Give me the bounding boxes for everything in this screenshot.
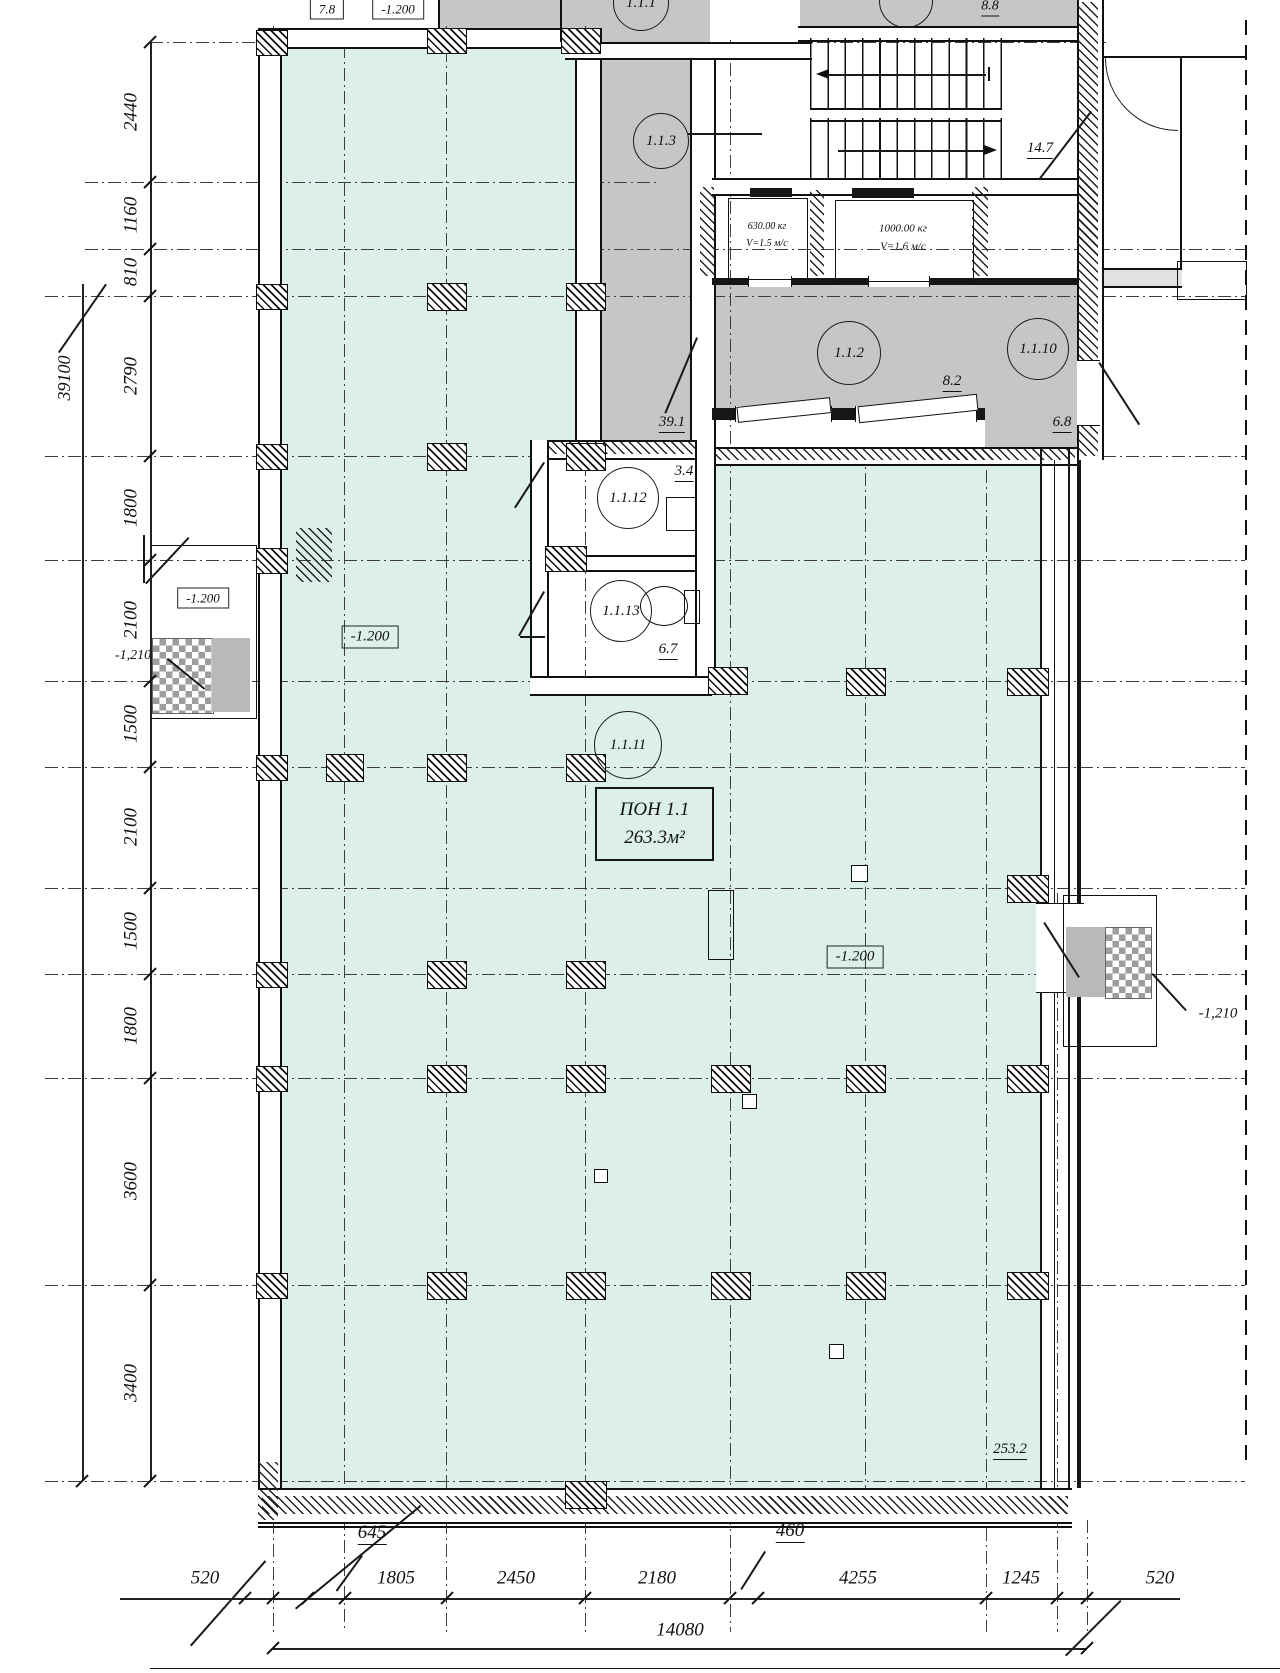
fill-region: [598, 56, 690, 456]
plan-label-19: 39100: [55, 356, 73, 401]
fill-region: [278, 45, 580, 456]
geom-hthin: [1102, 286, 1182, 288]
plan-label-8: 8.2: [943, 374, 962, 392]
geom-dk: [988, 67, 990, 81]
plan-label-0: 7.8: [310, 0, 344, 20]
column-symbol: [566, 1272, 606, 1300]
geom-hx: [714, 449, 1075, 460]
diagonal-line: [520, 636, 545, 638]
column-symbol: [256, 1273, 288, 1299]
dim-left-8: 1500: [122, 912, 141, 950]
plan-label-7: V=1.6 м/с: [880, 242, 926, 253]
column-symbol: [256, 755, 288, 781]
geom-hx: [810, 190, 824, 276]
plan-label-13: 253.2: [993, 1442, 1027, 1460]
geom-wb: [565, 42, 812, 60]
room-tag-1.1.10: 1.1.10: [1007, 318, 1069, 380]
small-column-symbol: [829, 1344, 844, 1359]
geom-ramp: [212, 638, 250, 712]
column-symbol: [545, 546, 587, 572]
column-symbol: [256, 444, 288, 470]
column-symbol: [846, 668, 886, 696]
diagonal-line: [143, 535, 145, 583]
grid-line-v: [865, 450, 866, 1525]
geom-vthin: [438, 0, 440, 28]
plan-label-5: V=1.5 м/с: [746, 239, 787, 249]
stair-direction-arrowhead: [984, 145, 997, 155]
plan-label-16: -1.200: [177, 588, 229, 609]
room-tag-1.1.12: 1.1.12: [597, 467, 659, 529]
dim-bottom-5: 460: [776, 1521, 805, 1543]
column-symbol: [1007, 668, 1049, 696]
dim-left-10: 3600: [122, 1162, 141, 1200]
dim-left-0: 2440: [122, 93, 141, 131]
column-symbol: [711, 1272, 751, 1300]
column-symbol: [427, 28, 467, 54]
column-symbol: [256, 548, 288, 574]
diagonal-line: [1152, 973, 1187, 1011]
column-symbol: [1007, 875, 1049, 903]
plan-label-18: -1,210: [1199, 1007, 1238, 1022]
grid-line-v: [1087, 1520, 1088, 1632]
geom-wbv: [575, 28, 602, 458]
geom-hx: [972, 187, 988, 276]
diagonal-line: [838, 150, 984, 152]
geom-hx: [532, 442, 710, 454]
zone-name: ПОН 1.1: [620, 799, 690, 821]
geom-vthin: [1180, 56, 1182, 268]
dim-bottom-6: 4255: [839, 1569, 877, 1588]
plan-label-10: 39.1: [659, 415, 685, 433]
plan-label-1: -1.200: [372, 0, 424, 20]
geom-hthin: [1102, 268, 1182, 270]
small-column-symbol: [594, 1169, 608, 1183]
plan-label-4: 630.00 кг: [748, 222, 787, 232]
plan-label-17: -1,210: [115, 649, 151, 663]
geom-hx: [296, 528, 332, 582]
column-symbol: [846, 1065, 886, 1093]
diagonal-line: [1099, 362, 1140, 425]
zone-area: 263.3м²: [624, 827, 685, 849]
door-swing-arc: [1105, 58, 1178, 131]
dim-total: 14080: [656, 1621, 704, 1640]
plan-label-11: 3.4: [675, 464, 694, 482]
geom-dk: [852, 188, 914, 198]
column-symbol: [566, 283, 606, 311]
grid-line-h: [45, 888, 1245, 889]
geom-gapv: [1077, 360, 1100, 426]
boundary-dashed-line: [1245, 20, 1247, 1470]
dim-bottom-0: 520: [191, 1569, 220, 1588]
column-symbol: [1007, 1272, 1049, 1300]
column-symbol: [256, 30, 288, 56]
plan-label-2: 8.8: [981, 0, 999, 17]
column-symbol: [561, 28, 601, 54]
diagonal-line: [688, 133, 762, 135]
dim-left-4: 1800: [122, 489, 141, 527]
grid-line-v: [446, 26, 447, 1632]
grid-line-h: [45, 1481, 1245, 1482]
column-symbol: [256, 1066, 288, 1092]
dim-left-11: 3400: [122, 1364, 141, 1402]
diagonal-line: [828, 74, 986, 76]
geom-mat: [1105, 927, 1152, 999]
plan-label-15: -1.200: [827, 946, 884, 969]
column-symbol: [256, 962, 288, 988]
column-symbol: [708, 667, 748, 695]
geom-dk: [750, 188, 792, 197]
geom-ol: [666, 497, 696, 531]
small-column-symbol: [851, 865, 868, 882]
grid-line-h: [45, 296, 1245, 297]
dim-bottom-7: 1245: [1002, 1569, 1040, 1588]
dim-line-outer: [82, 284, 84, 1481]
geom-tr: [810, 118, 1002, 178]
geom-mat: [152, 638, 214, 714]
column-symbol: [1007, 1065, 1049, 1093]
column-symbol: [256, 284, 288, 310]
plan-label-6: 1000.00 кг: [879, 224, 927, 235]
geom-hx: [262, 1496, 1068, 1514]
geom-ramp: [1066, 927, 1105, 997]
room-tag-1.1.11: 1.1.11: [594, 711, 662, 779]
dim-line-total: [273, 1648, 1087, 1650]
geom-ol: [1177, 261, 1247, 300]
dim-line-left: [150, 42, 152, 1481]
dim-left-2: 810: [122, 258, 141, 287]
plan-label-14: -1.200: [342, 626, 399, 649]
column-symbol: [326, 754, 364, 782]
geom-hx: [258, 1462, 278, 1520]
fill-region: [712, 56, 798, 178]
room-tag-1.1.3: 1.1.3: [633, 113, 689, 169]
grid-line-v: [986, 447, 987, 1632]
geom-ol: [708, 890, 734, 960]
column-symbol: [566, 1065, 606, 1093]
fill-region: [1100, 268, 1182, 288]
dim-bottom-2: 1805: [377, 1569, 415, 1588]
fill-region: [800, 0, 1102, 26]
small-column-symbol: [742, 1094, 757, 1109]
dim-bottom-8: 520: [1146, 1569, 1175, 1588]
dim-left-7: 2100: [122, 808, 141, 846]
column-symbol: [711, 1065, 751, 1093]
grid-line-h: [45, 1078, 1245, 1079]
column-symbol: [427, 1272, 467, 1300]
dim-bottom-3: 2450: [497, 1569, 535, 1588]
dim-left-6: 1500: [122, 705, 141, 743]
column-symbol: [566, 443, 606, 471]
column-symbol: [566, 961, 606, 989]
dim-left-5: 2100: [122, 601, 141, 639]
column-symbol: [565, 1481, 607, 1509]
column-symbol: [846, 1272, 886, 1300]
geom-wb: [530, 676, 712, 696]
plan-label-12: 6.7: [659, 642, 678, 660]
diagonal-line: [336, 1555, 363, 1592]
dim-left-9: 1800: [122, 1007, 141, 1045]
column-symbol: [427, 283, 467, 311]
diagonal-line: [741, 1551, 766, 1590]
dim-line-bottom: [120, 1598, 1180, 1600]
floor-plan-canvas: 1.1.11.1.31.1.21.1.101.1.121.1.131.1.11П…: [0, 0, 1280, 1673]
dim-left-3: 2790: [122, 357, 141, 395]
column-symbol: [427, 443, 467, 471]
dim-bottom-1: 645: [358, 1523, 387, 1545]
geom-ol: [684, 590, 700, 624]
grid-line-h: [45, 1285, 1245, 1286]
stair-direction-arrowhead: [816, 69, 829, 79]
plan-label-3: 14.7: [1027, 141, 1053, 159]
geom-wbv: [695, 440, 716, 692]
room-tag-1.1.2: 1.1.2: [817, 321, 881, 385]
geom-hx: [700, 187, 714, 276]
column-symbol: [427, 961, 467, 989]
dim-bottom-4: 2180: [638, 1569, 676, 1588]
room-tag-1.1.13: 1.1.13: [590, 580, 652, 642]
dim-left-1: 1160: [122, 197, 141, 234]
plan-label-9: 6.8: [1053, 415, 1072, 433]
column-symbol: [427, 1065, 467, 1093]
zone-label-box: ПОН 1.1263.3м²: [595, 787, 714, 861]
base-line: [150, 1668, 1280, 1669]
column-symbol: [427, 754, 467, 782]
grid-line-h: [85, 182, 660, 183]
grid-line-v: [344, 45, 345, 1632]
